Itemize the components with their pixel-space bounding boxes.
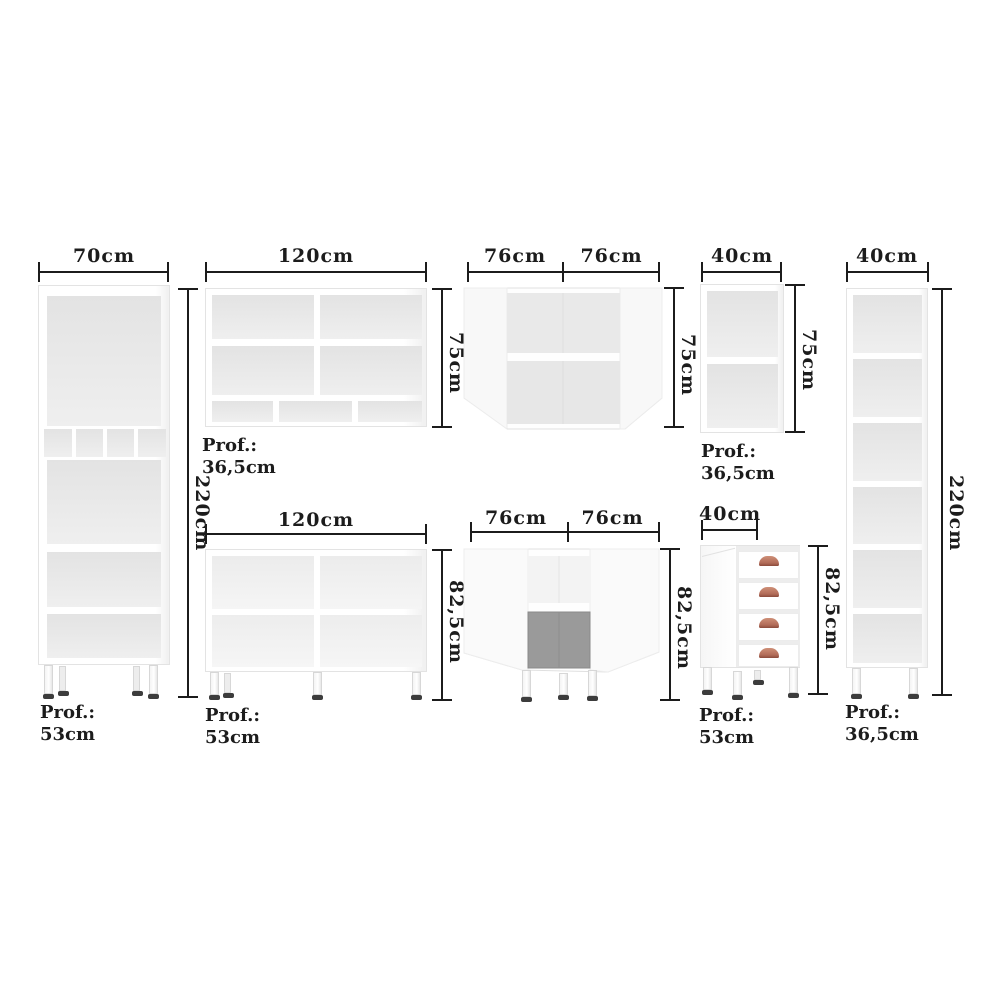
open-shelf-compartment <box>47 296 161 426</box>
open-shelf-compartment <box>853 550 922 608</box>
drawer-handle <box>759 587 779 597</box>
depth-label: Prof.: 36,5cm <box>701 441 775 485</box>
open-shelf-compartment <box>212 295 314 339</box>
width-dimension-label-right: 76cm <box>565 507 660 529</box>
depth-label: Prof.: 36,5cm <box>202 435 276 479</box>
height-dimension-label: 82,5cm <box>821 567 843 651</box>
height-dimension-line <box>669 548 671 701</box>
height-dimension-line <box>817 545 819 695</box>
depth-label-value: 53cm <box>205 727 260 749</box>
height-dimension-line <box>441 288 443 428</box>
drawer <box>738 613 799 641</box>
width-dimension-label-left: 76cm <box>467 245 563 267</box>
drawer-handle <box>759 556 779 566</box>
bottle-rack-slot <box>44 429 72 457</box>
depth-label-title: Prof.: <box>202 435 276 457</box>
height-dimension-label: 220cm <box>945 475 967 551</box>
cabinet-leg <box>210 672 219 695</box>
width-dimension-line <box>205 271 427 273</box>
width-dimension-label-right: 76cm <box>563 245 660 267</box>
open-shelf-compartment <box>320 295 422 339</box>
open-shelf-compartment <box>853 423 922 481</box>
corner-wall-cabinet-76 <box>463 287 663 430</box>
depth-label-title: Prof.: <box>699 705 754 727</box>
open-shelf-compartment <box>320 346 422 395</box>
small-niche <box>212 401 273 422</box>
cabinet-leg <box>44 665 53 694</box>
open-shelf-compartment <box>212 346 314 395</box>
open-shelf-compartment <box>853 614 922 663</box>
height-dimension-line <box>187 288 189 698</box>
depth-label: Prof.: 53cm <box>205 705 260 749</box>
open-shelf-compartment <box>320 556 422 609</box>
tall-cabinet-40 <box>846 288 928 668</box>
open-shelf-compartment <box>853 487 922 544</box>
wall-cabinet-40 <box>700 284 784 433</box>
open-shelf-compartment <box>853 295 922 353</box>
open-shelf-compartment <box>320 615 422 667</box>
height-dimension-line <box>673 287 675 428</box>
cabinet-leg <box>852 668 861 694</box>
bottle-rack-slot <box>76 429 103 457</box>
depth-label-title: Prof.: <box>40 702 95 724</box>
depth-label-value: 36,5cm <box>202 457 276 479</box>
cabinet-leg <box>59 666 66 691</box>
open-shelf-compartment <box>707 364 778 428</box>
tall-cabinet-70 <box>38 285 170 665</box>
open-shelf-compartment <box>212 556 314 609</box>
cabinet-leg <box>522 670 531 697</box>
width-dimension-label: 40cm <box>700 245 784 267</box>
width-dimension-label: 120cm <box>270 245 362 267</box>
depth-label: Prof.: 36,5cm <box>845 702 919 746</box>
cabinet-leg <box>789 667 798 693</box>
cabinet-leg <box>559 673 568 695</box>
depth-label-value: 36,5cm <box>845 724 919 746</box>
depth-label-title: Prof.: <box>845 702 919 724</box>
depth-label-title: Prof.: <box>701 441 775 463</box>
cabinet-leg <box>909 668 918 694</box>
open-shelf-compartment <box>47 460 161 544</box>
width-dimension-label: 120cm <box>270 509 362 531</box>
bottle-rack-slot <box>138 429 166 457</box>
height-dimension-label: 75cm <box>798 329 820 391</box>
drawer-handle <box>759 618 779 628</box>
depth-label-value: 36,5cm <box>701 463 775 485</box>
width-dimension-line <box>701 271 782 273</box>
depth-label: Prof.: 53cm <box>699 705 754 749</box>
dimension-middle-tick <box>562 262 564 282</box>
width-dimension-label: 40cm <box>699 503 759 525</box>
cabinet-leg <box>754 670 761 680</box>
drawer-handle <box>759 648 779 658</box>
bottle-rack-slot <box>107 429 134 457</box>
width-dimension-line <box>205 533 427 535</box>
depth-label-value: 53cm <box>699 727 754 749</box>
width-dimension-line <box>467 271 660 273</box>
height-dimension-line <box>794 284 796 433</box>
width-dimension-label-left: 76cm <box>467 507 565 529</box>
drawer <box>738 551 799 579</box>
depth-label-value: 53cm <box>40 724 95 746</box>
height-dimension-label: 82,5cm <box>673 586 695 670</box>
open-shelf-compartment <box>212 615 314 667</box>
width-dimension-line <box>846 271 929 273</box>
cabinet-leg <box>588 670 597 696</box>
cabinet-leg <box>703 667 712 690</box>
width-dimension-line <box>38 271 169 273</box>
wall-cabinet-120 <box>205 288 427 427</box>
cabinet-leg <box>313 672 322 695</box>
dimension-middle-tick <box>567 522 569 542</box>
width-dimension-label: 40cm <box>846 245 928 267</box>
base-cabinet-120 <box>205 549 427 672</box>
height-dimension-line <box>941 288 943 696</box>
height-dimension-line <box>441 549 443 701</box>
depth-label: Prof.: 53cm <box>40 702 95 746</box>
cabinet-leg <box>412 672 421 695</box>
open-shelf-compartment <box>47 552 161 607</box>
width-dimension-line <box>470 531 660 533</box>
drawer <box>738 582 799 610</box>
corner-base-cabinet-76 <box>463 548 660 675</box>
width-dimension-label: 70cm <box>58 245 150 267</box>
open-shelf-compartment <box>47 614 161 658</box>
depth-label-title: Prof.: <box>205 705 260 727</box>
height-dimension-label: 220cm <box>191 475 213 551</box>
open-shelf-compartment <box>707 291 778 357</box>
side-panel <box>701 546 737 667</box>
small-niche <box>358 401 422 422</box>
cabinet-leg <box>733 671 742 695</box>
drawer-base-cabinet-40 <box>700 545 800 668</box>
drawer <box>738 644 799 667</box>
cabinet-leg <box>224 673 231 693</box>
cabinet-leg <box>133 666 140 691</box>
cabinet-leg <box>149 665 158 694</box>
open-shelf-compartment <box>853 359 922 417</box>
furniture-dimensions-diagram: 70cm 220cm Prof.: 53cm 120cm 75cm Prof.:… <box>0 0 1000 1000</box>
width-dimension-line <box>701 529 758 531</box>
small-niche <box>279 401 352 422</box>
height-dimension-label: 75cm <box>677 334 699 396</box>
